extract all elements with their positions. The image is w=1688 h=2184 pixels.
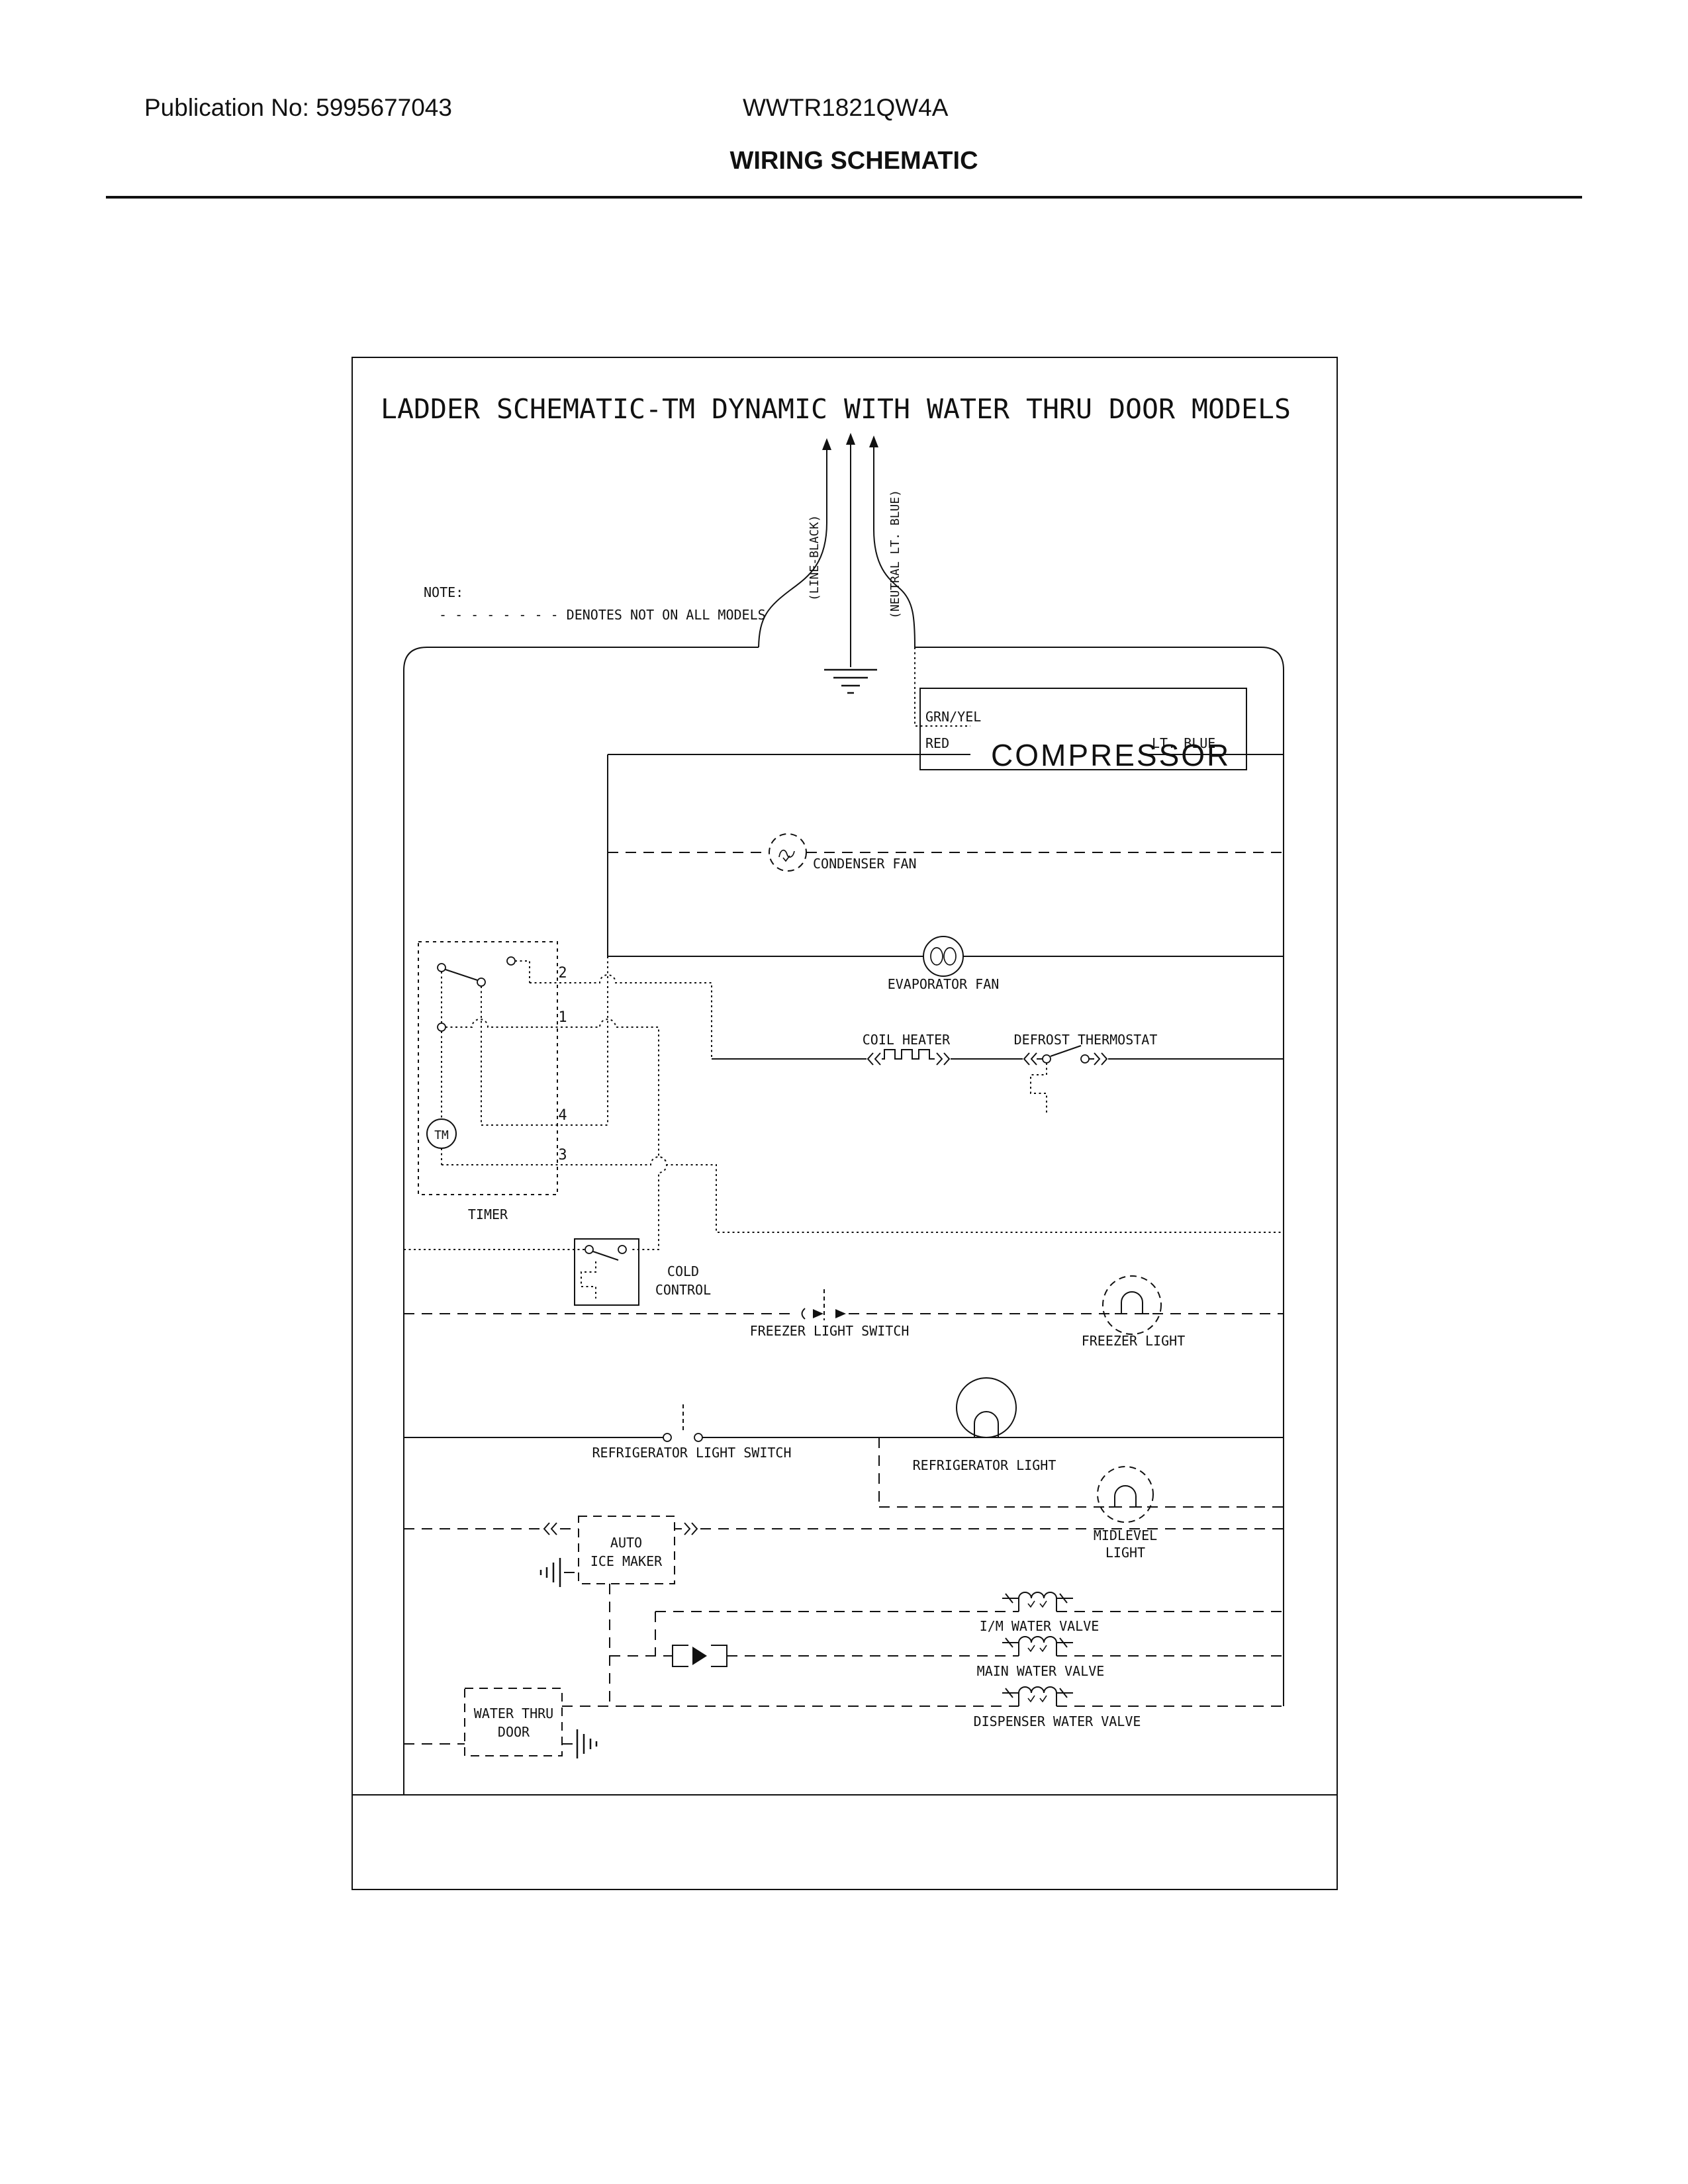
ground-icon xyxy=(824,670,877,693)
evaporator-fan-label: EVAPORATOR FAN xyxy=(888,976,1000,992)
left-rail xyxy=(404,647,759,1795)
right-rail xyxy=(915,647,1284,1706)
grn-yel-label: GRN/YEL xyxy=(925,709,981,725)
midlevel-light-label-1: MIDLEVEL xyxy=(1094,1527,1157,1543)
midlevel-light-label-2: LIGHT xyxy=(1105,1545,1145,1561)
neutral-arrow-icon xyxy=(869,435,878,447)
freezer-light-row: FREEZER LIGHT SWITCH FREEZER LIGHT xyxy=(404,1276,1284,1349)
freezer-light-switch-label: FREEZER LIGHT SWITCH xyxy=(750,1323,910,1339)
defrost-row: COIL HEATER DEFROST THERMOSTAT xyxy=(712,1032,1284,1115)
midlevel-light-row: MIDLEVEL LIGHT xyxy=(879,1467,1284,1561)
note-text: - - - - - - - - DENOTES NOT ON ALL MODEL… xyxy=(439,607,766,623)
refrigerator-light-switch-label: REFRIGERATOR LIGHT SWITCH xyxy=(592,1445,791,1461)
water-thru-door-ground-icon xyxy=(577,1729,596,1758)
timer-label: TIMER xyxy=(468,1206,508,1222)
dispenser-water-valve-icon xyxy=(1002,1687,1073,1706)
im-water-valve-label: I/M WATER VALVE xyxy=(980,1618,1100,1634)
schematic-title: LADDER SCHEMATIC-TM DYNAMIC WITH WATER T… xyxy=(381,393,1291,425)
freezer-light-icon xyxy=(1103,1276,1161,1334)
water-thru-door: WATER THRU DOOR xyxy=(404,1688,596,1758)
power-entry: (LINE-BLACK) (NEUTRAL LT. BLUE) xyxy=(759,433,915,693)
auto-ice-maker-label-1: AUTO xyxy=(610,1535,642,1551)
timer-motor-label: TM xyxy=(434,1128,449,1142)
evaporator-fan-motor-icon xyxy=(923,936,963,976)
auto-ice-maker-label-2: ICE MAKER xyxy=(590,1553,663,1569)
valve-connector-icon xyxy=(673,1645,727,1666)
red-label: RED xyxy=(925,735,949,751)
refrigerator-light-row: REFRIGERATOR LIGHT SWITCH REFRIGERATOR L… xyxy=(404,1378,1284,1507)
freezer-light-switch-icon xyxy=(802,1289,847,1320)
coil-heater-label: COIL HEATER xyxy=(863,1032,951,1048)
neutral-lt-blue-label: (NEUTRAL LT. BLUE) xyxy=(888,490,902,619)
refrigerator-light-label: REFRIGERATOR LIGHT xyxy=(913,1457,1056,1473)
im-water-valve-row: I/M WATER VALVE xyxy=(655,1592,1284,1656)
main-water-valve-label: MAIN WATER VALVE xyxy=(977,1663,1105,1679)
timer-wire-3 xyxy=(442,1157,1284,1232)
defrost-thermostat-label: DEFROST THERMOSTAT xyxy=(1014,1032,1158,1048)
water-thru-door-label-2: DOOR xyxy=(498,1724,530,1740)
water-thru-door-box xyxy=(465,1688,562,1756)
timer: TM TIMER 2 1 4 3 xyxy=(418,942,1284,1250)
cold-control-blade xyxy=(593,1251,618,1260)
note-heading: NOTE: xyxy=(424,584,463,600)
defrost-thermostat-sensor xyxy=(1031,1063,1047,1115)
timer-wire-4 xyxy=(481,986,608,1125)
ground-wire-arrow-icon xyxy=(846,433,855,445)
im-water-valve-icon xyxy=(1002,1592,1073,1612)
compressor: GRN/YEL RED COMPRESSOR LT. BLUE xyxy=(608,647,1284,772)
refrigerator-light-icon xyxy=(957,1378,1016,1437)
water-thru-door-label-1: WATER THRU xyxy=(474,1706,553,1721)
dispenser-water-valve-label: DISPENSER WATER VALVE xyxy=(974,1713,1141,1729)
coil-heater-icon xyxy=(882,1050,935,1059)
terminal-1-label: 1 xyxy=(558,1009,567,1026)
condenser-fan-label: CONDENSER FAN xyxy=(813,856,917,872)
condenser-fan-row: CONDENSER FAN xyxy=(608,834,1284,872)
schematic-border xyxy=(352,357,1337,1889)
line-arrow-icon xyxy=(822,438,831,450)
terminal-3-label: 3 xyxy=(558,1147,567,1163)
timer-box xyxy=(418,942,557,1195)
lt-blue-label: LT. BLUE xyxy=(1152,735,1215,751)
dispenser-water-valve-row: DISPENSER WATER VALVE xyxy=(562,1687,1284,1729)
main-water-valve-icon xyxy=(1002,1637,1073,1656)
terminal-2-label: 2 xyxy=(558,965,567,981)
cold-control-label-1: COLD xyxy=(667,1263,699,1279)
cold-control-label-2: CONTROL xyxy=(655,1282,711,1298)
freezer-light-label: FREEZER LIGHT xyxy=(1082,1333,1186,1349)
ice-maker-ground-icon xyxy=(541,1558,560,1587)
wiring-schematic-canvas: LADDER SCHEMATIC-TM DYNAMIC WITH WATER T… xyxy=(0,0,1688,2184)
midlevel-light-icon xyxy=(1098,1467,1153,1522)
main-water-valve-row: MAIN WATER VALVE xyxy=(610,1637,1284,1679)
condenser-fan-motor-icon xyxy=(769,834,806,871)
evaporator-fan-row: EVAPORATOR FAN xyxy=(608,936,1284,992)
timer-blade xyxy=(445,970,477,980)
cold-control: COLD CONTROL xyxy=(404,1239,711,1305)
cold-control-sensor xyxy=(581,1261,596,1298)
terminal-4-label: 4 xyxy=(558,1107,567,1124)
line-black-label: (LINE-BLACK) xyxy=(808,515,821,601)
